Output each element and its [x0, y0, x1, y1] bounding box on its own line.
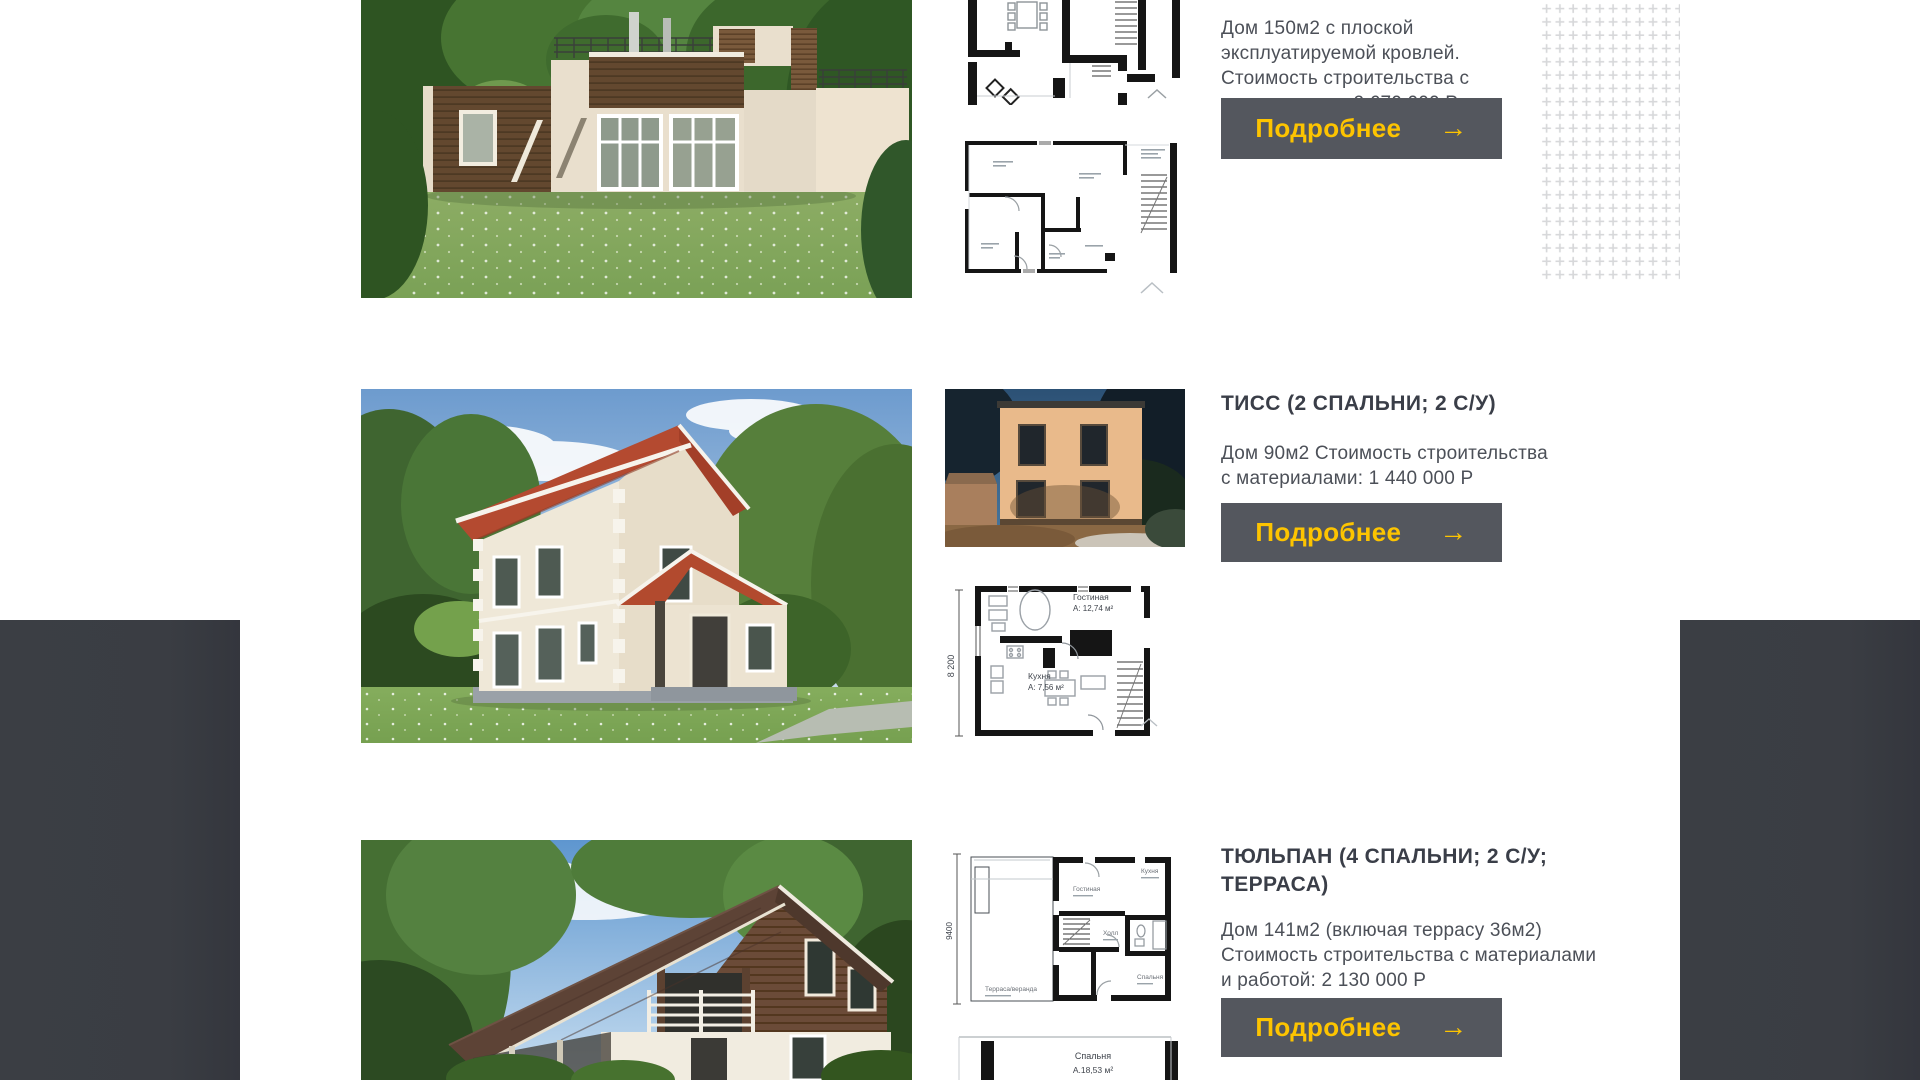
- plan-room-label: Спальня: [1137, 974, 1164, 981]
- house-render-image: [361, 389, 912, 743]
- arrow-right-icon: →: [1439, 516, 1467, 548]
- details-button-label: Подробнее: [1255, 113, 1401, 144]
- plan-dimension-label: 8 200: [946, 655, 956, 678]
- left-accent-bar: [0, 0, 240, 1080]
- left-accent-dark: [0, 620, 240, 1080]
- plan-dimension-label: 9400: [945, 922, 954, 940]
- project-title: ТИСС (2 СПАЛЬНИ; 2 С/У): [1221, 390, 1641, 418]
- plan-room-label: Терраса/веранда: [985, 986, 1037, 993]
- right-accent-bar: [1680, 0, 1920, 1080]
- plan-room-area: А.18,53 м²: [1073, 1065, 1114, 1075]
- floor-plan-image: [945, 133, 1185, 305]
- details-button[interactable]: Подробнее →: [1221, 98, 1502, 159]
- floor-plan-image: [945, 0, 1185, 105]
- floor-plan-image: Спальня А.18,53 м²: [945, 1035, 1185, 1080]
- project-description: Дом 141м2 (включая террасу 36м2) Стоимос…: [1221, 918, 1601, 993]
- plan-room-label: Спальня: [1075, 1051, 1111, 1061]
- details-button-label: Подробнее: [1255, 517, 1401, 548]
- plus-pattern-decoration: [1540, 2, 1680, 283]
- right-accent-dark: [1680, 620, 1920, 1080]
- plan-room-label: Гостиная: [1073, 592, 1109, 602]
- details-button[interactable]: Подробнее →: [1221, 998, 1502, 1057]
- plan-room-area: А: 7,56 м²: [1028, 683, 1064, 692]
- plan-room-label: Гостиная: [1073, 886, 1101, 893]
- plan-room-area: А: 12,74 м²: [1073, 604, 1114, 613]
- project-description: Дом 90м2 Стоимость строительства с матер…: [1221, 441, 1551, 491]
- project-title: ТЮЛЬПАН (4 СПАЛЬНИ; 2 С/У; ТЕРРАСА): [1221, 843, 1561, 899]
- house-catalog-page: Дом 150м2 с плоской эксплуатируемой кров…: [0, 0, 1920, 1080]
- arrow-right-icon: →: [1439, 112, 1467, 144]
- house-render-image: [361, 840, 912, 1080]
- plan-room-label: Кухня: [1028, 671, 1051, 681]
- left-accent-yellow: [0, 0, 240, 620]
- right-accent-yellow: [1680, 0, 1920, 620]
- house-photo: [945, 389, 1185, 547]
- house-render-image: [361, 0, 912, 298]
- floor-plan-image: 8 200: [945, 578, 1185, 745]
- plan-room-label: Кухня: [1141, 868, 1159, 875]
- floor-plan-image: 9400: [945, 839, 1185, 1011]
- arrow-right-icon: →: [1439, 1011, 1467, 1043]
- details-button-label: Подробнее: [1255, 1012, 1401, 1043]
- details-button[interactable]: Подробнее →: [1221, 503, 1502, 562]
- plan-room-label: Холл: [1103, 930, 1119, 937]
